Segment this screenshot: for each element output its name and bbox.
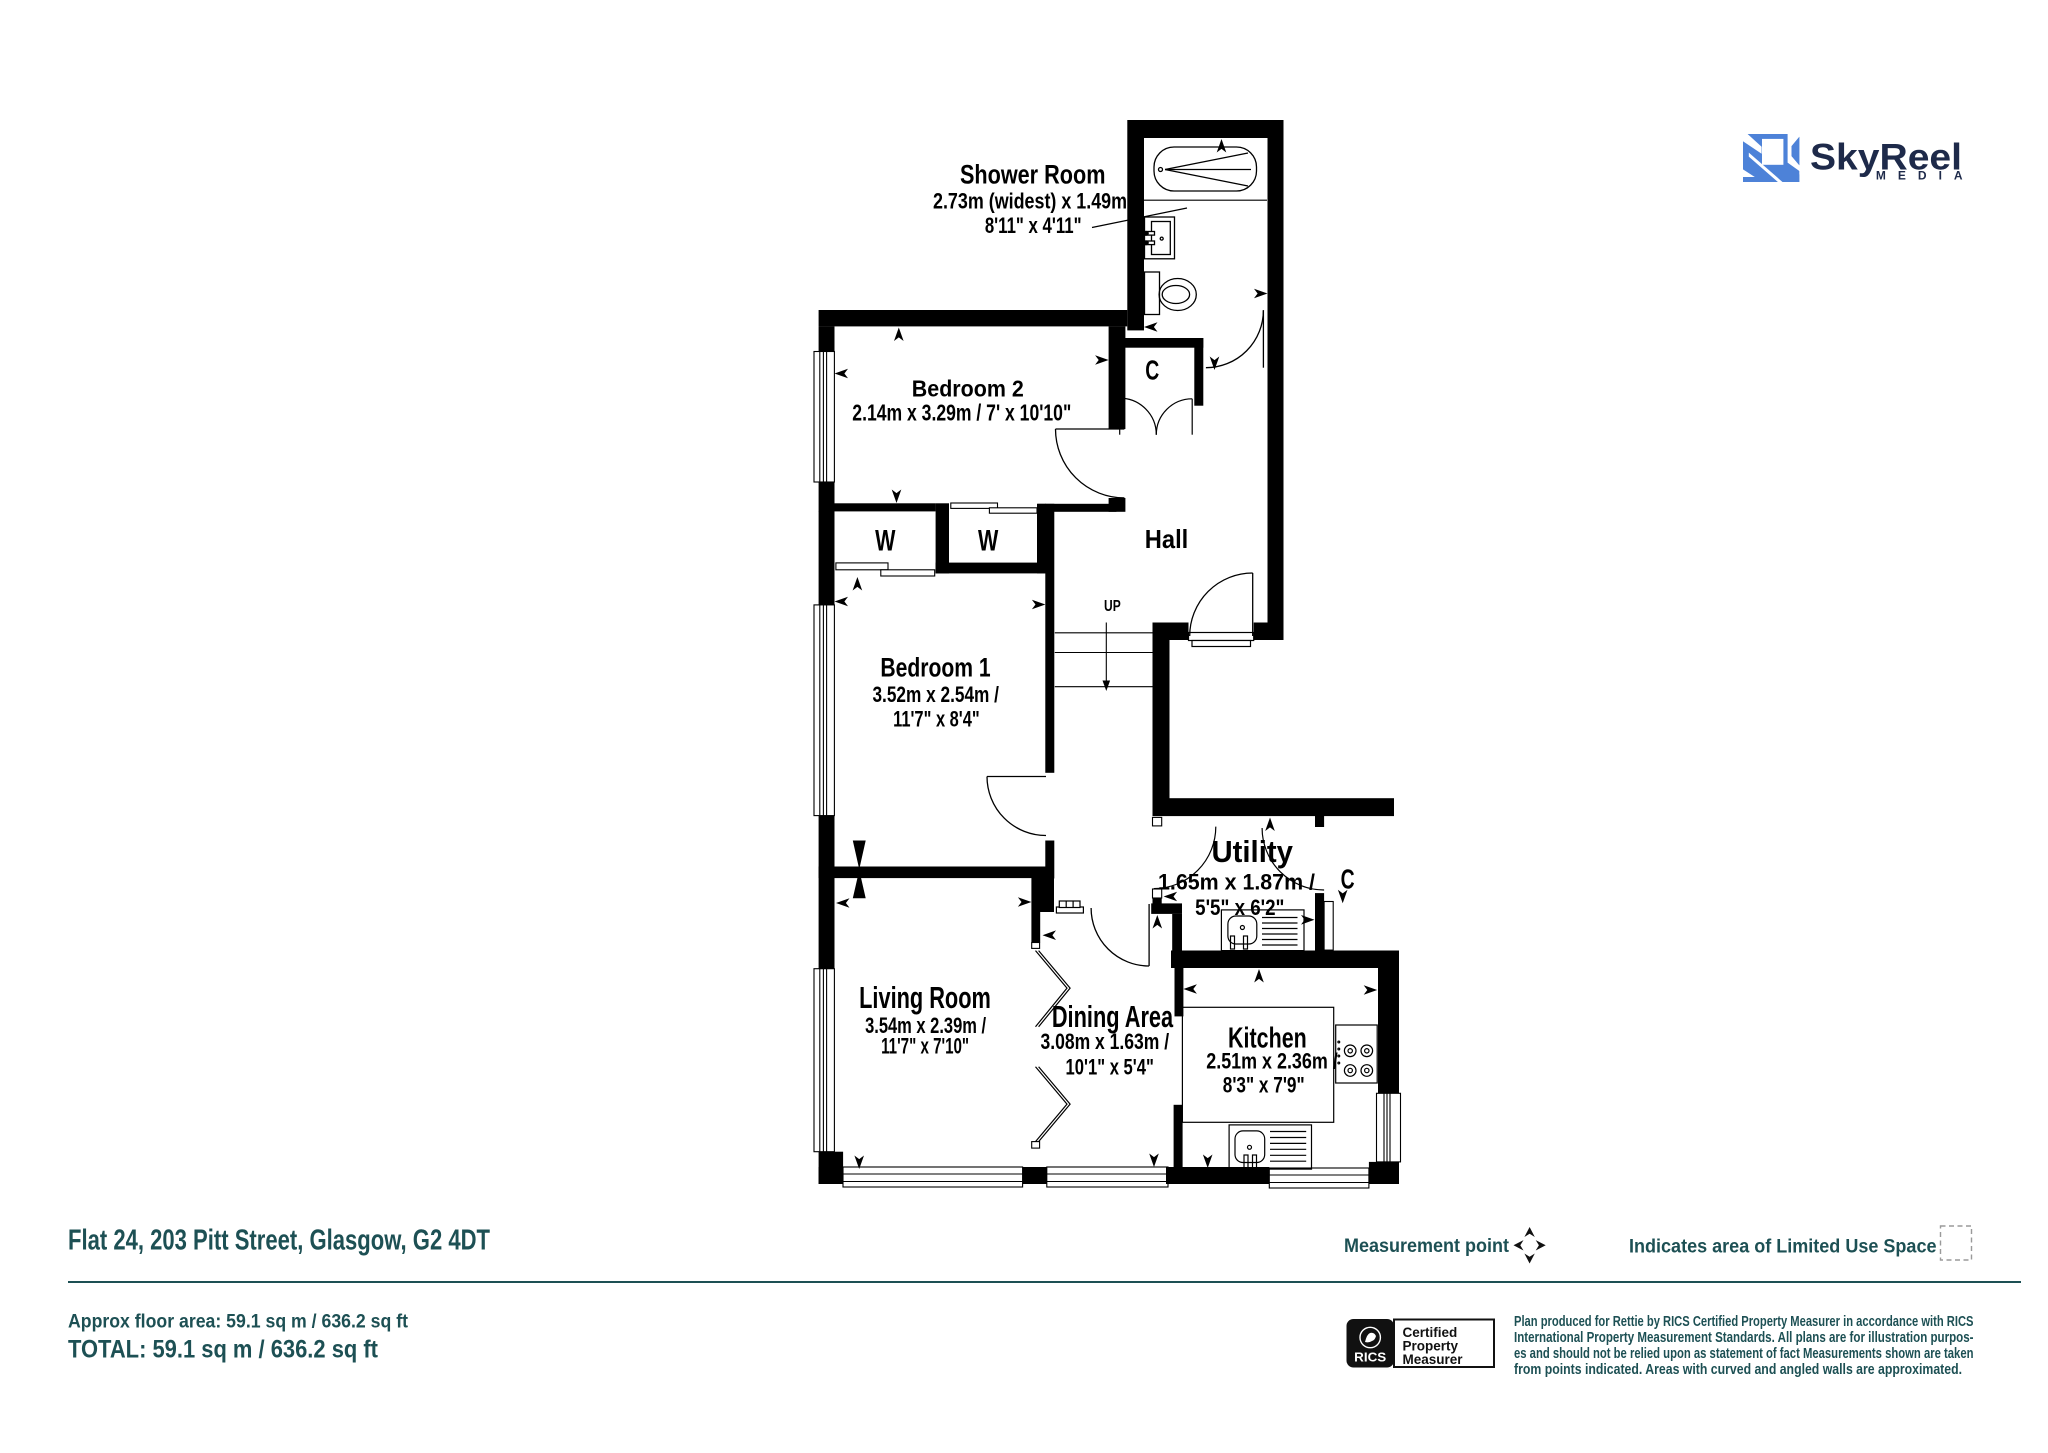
svg-text:Living Room: Living Room bbox=[859, 980, 991, 1015]
svg-text:International Property Measur: International Property Measurement Stand… bbox=[1514, 1330, 1974, 1346]
svg-text:Bedroom 2: Bedroom 2 bbox=[912, 375, 1024, 401]
svg-text:8'3" x 7'9": 8'3" x 7'9" bbox=[1223, 1072, 1305, 1097]
svg-text:Utility: Utility bbox=[1212, 834, 1294, 869]
svg-text:Plan produced for Rettie by RI: Plan produced for Rettie by RICS Certifi… bbox=[1514, 1314, 1974, 1330]
svg-text:10'1" x 5'4": 10'1" x 5'4" bbox=[1066, 1054, 1154, 1079]
svg-text:Approx floor area: 59.1 sq m /: Approx floor area: 59.1 sq m / 636.2 sq … bbox=[68, 1311, 408, 1333]
svg-text:5'5" x 6'2": 5'5" x 6'2" bbox=[1195, 895, 1284, 920]
svg-text:8'11" x 4'11": 8'11" x 4'11" bbox=[985, 213, 1082, 238]
svg-text:C: C bbox=[1341, 864, 1355, 895]
svg-text:RICS: RICS bbox=[1354, 1351, 1386, 1365]
svg-text:es and should not be relied up: es and should not be relied upon as stat… bbox=[1514, 1346, 1974, 1362]
svg-text:from points indicated. Areas w: from points indicated. Areas with curved… bbox=[1514, 1362, 1962, 1378]
svg-text:Flat 24, 203 Pitt Street, Glas: Flat 24, 203 Pitt Street, Glasgow, G2 4D… bbox=[68, 1225, 490, 1257]
svg-text:1.65m x 1.87m /: 1.65m x 1.87m / bbox=[1158, 870, 1315, 895]
svg-text:W: W bbox=[978, 525, 999, 558]
svg-text:11'7" x 7'10": 11'7" x 7'10" bbox=[881, 1034, 969, 1059]
svg-text:2.51m x 2.36m /: 2.51m x 2.36m / bbox=[1206, 1048, 1338, 1073]
svg-text:Indicates area of Limited Use: Indicates area of Limited Use Space bbox=[1629, 1237, 1937, 1258]
svg-text:2.14m x 3.29m / 7' x 10'10": 2.14m x 3.29m / 7' x 10'10" bbox=[852, 400, 1071, 426]
svg-text:3.08m x 1.63m /: 3.08m x 1.63m / bbox=[1040, 1029, 1169, 1054]
svg-text:11'7" x 8'4": 11'7" x 8'4" bbox=[893, 707, 980, 732]
svg-text:Shower Room: Shower Room bbox=[960, 160, 1106, 190]
svg-text:Hall: Hall bbox=[1145, 524, 1189, 554]
svg-text:UP: UP bbox=[1104, 598, 1121, 615]
svg-text:2.73m (widest) x 1.49m /: 2.73m (widest) x 1.49m / bbox=[933, 189, 1137, 214]
svg-text:Measurement point: Measurement point bbox=[1344, 1236, 1510, 1257]
svg-text:TOTAL: 59.1 sq m / 636.2 sq ft: TOTAL: 59.1 sq m / 636.2 sq ft bbox=[68, 1336, 379, 1364]
svg-text:C: C bbox=[1145, 355, 1159, 386]
svg-text:W: W bbox=[875, 525, 896, 558]
svg-text:Measurer: Measurer bbox=[1403, 1352, 1464, 1367]
svg-text:Bedroom 1: Bedroom 1 bbox=[880, 653, 990, 683]
svg-text:3.52m x 2.54m /: 3.52m x 2.54m / bbox=[872, 682, 999, 707]
